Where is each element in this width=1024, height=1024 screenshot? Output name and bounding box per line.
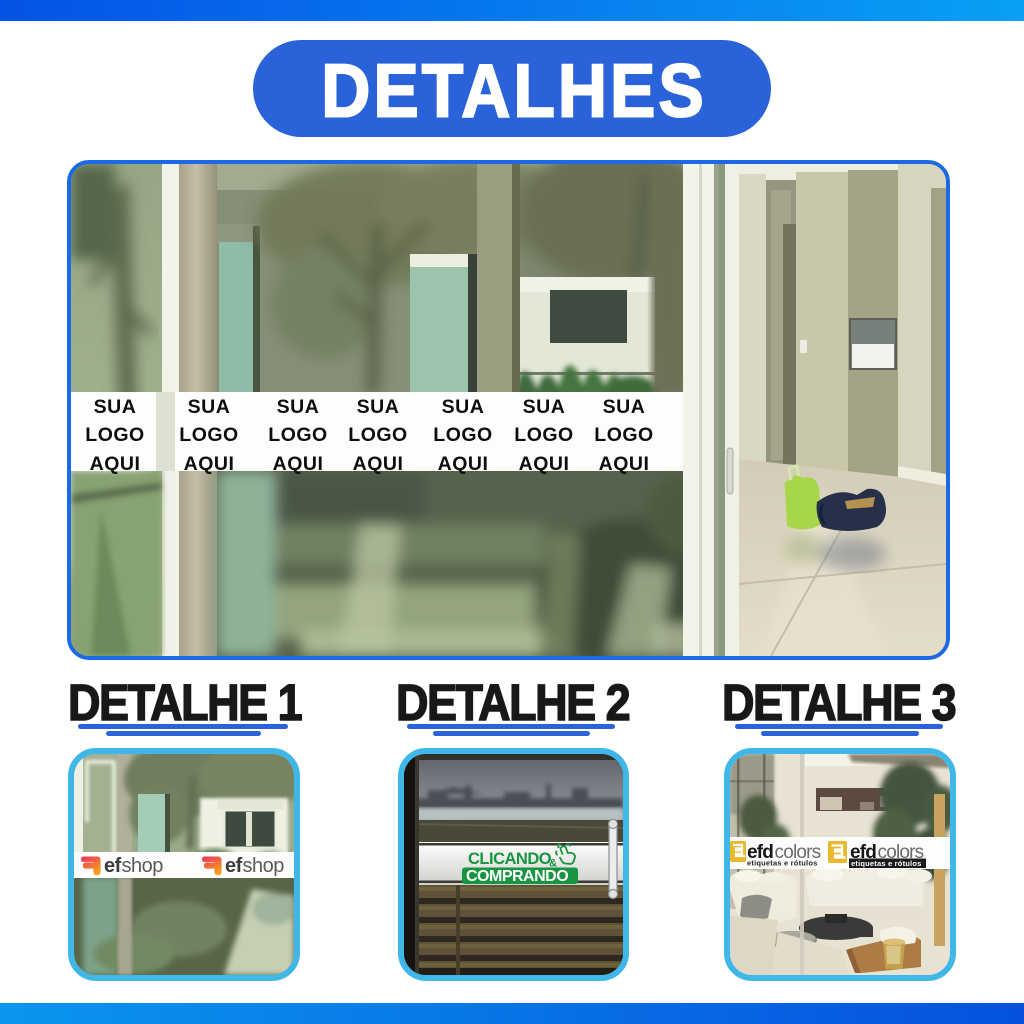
svg-text:LOGO: LOGO	[268, 424, 327, 446]
svg-text:LOGO: LOGO	[348, 424, 407, 446]
svg-text:COMPRANDO: COMPRANDO	[466, 868, 568, 885]
svg-text:AQUI: AQUI	[273, 453, 324, 475]
svg-text:SUA: SUA	[357, 396, 400, 418]
svg-text:SUA: SUA	[523, 396, 566, 418]
svg-text:AQUI: AQUI	[353, 453, 404, 475]
svg-text:LOGO: LOGO	[514, 424, 573, 446]
svg-text:CLICANDO: CLICANDO	[468, 850, 552, 868]
svg-text:LOGO: LOGO	[179, 424, 238, 446]
svg-text:AQUI: AQUI	[519, 453, 570, 475]
svg-text:SUA: SUA	[94, 396, 137, 418]
svg-text:AQUI: AQUI	[599, 453, 650, 475]
svg-text:ef: ef	[225, 855, 243, 877]
svg-text:LOGO: LOGO	[433, 424, 492, 446]
svg-text:ef: ef	[104, 855, 122, 877]
svg-text:SUA: SUA	[277, 396, 320, 418]
svg-text:shop: shop	[122, 855, 164, 877]
svg-text:AQUI: AQUI	[438, 453, 489, 475]
svg-text:SUA: SUA	[188, 396, 231, 418]
svg-text:LOGO: LOGO	[85, 424, 144, 446]
svg-text:etiquetas e rótulos: etiquetas e rótulos	[851, 859, 921, 868]
svg-text:shop: shop	[243, 855, 285, 877]
svg-text:AQUI: AQUI	[184, 453, 235, 475]
svg-text:AQUI: AQUI	[90, 453, 141, 475]
svg-text:LOGO: LOGO	[594, 424, 653, 446]
svg-text:SUA: SUA	[442, 396, 485, 418]
svg-text:etiquetas e rótulos: etiquetas e rótulos	[747, 859, 817, 868]
svg-text:SUA: SUA	[603, 396, 646, 418]
